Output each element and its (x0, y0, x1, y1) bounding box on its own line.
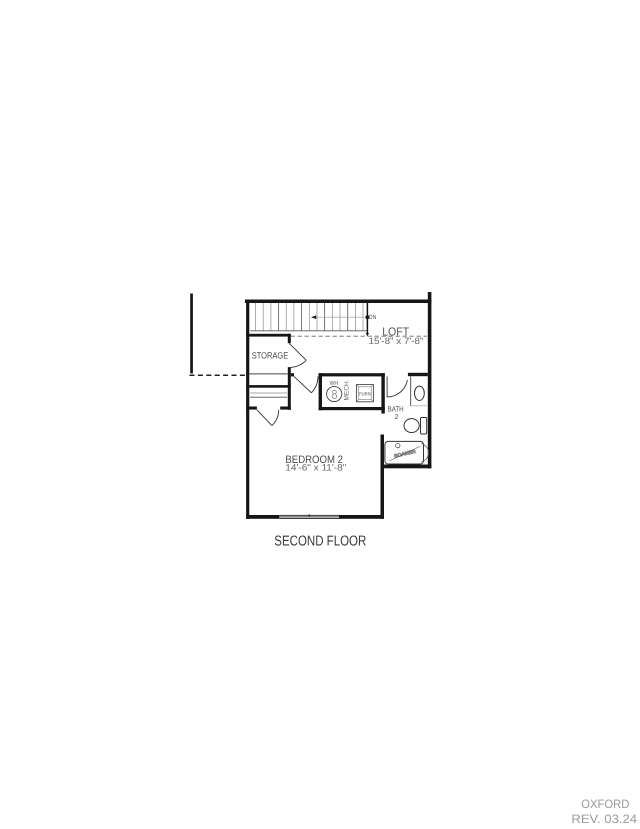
svg-text:SOAKER: SOAKER (394, 449, 417, 459)
svg-text:MECH.: MECH. (344, 379, 351, 400)
svg-text:BATH: BATH (388, 405, 404, 414)
svg-text:REV. 03.24: REV. 03.24 (571, 812, 637, 826)
svg-text:WH: WH (330, 380, 339, 387)
svg-text:STORAGE: STORAGE (252, 350, 289, 360)
svg-text:SECOND FLOOR: SECOND FLOOR (274, 534, 366, 550)
svg-text:FURN: FURN (359, 391, 371, 397)
svg-text:14'-6" x 11'-8": 14'-6" x 11'-8" (285, 463, 346, 473)
svg-text:OXFORD: OXFORD (581, 797, 629, 811)
svg-text:2: 2 (395, 414, 399, 421)
svg-text:DN: DN (369, 314, 377, 321)
svg-text:15'-8" x 7'-8": 15'-8" x 7'-8" (369, 336, 424, 346)
